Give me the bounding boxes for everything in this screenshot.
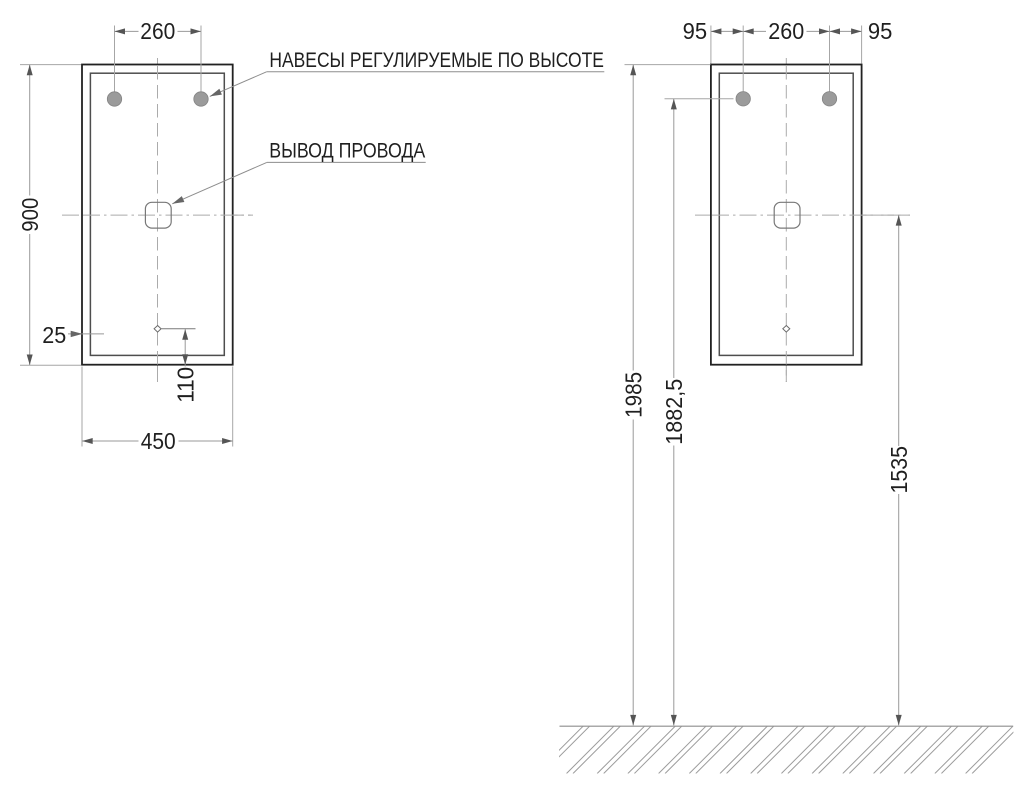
svg-text:260: 260 — [768, 18, 804, 44]
svg-text:1882,5: 1882,5 — [661, 379, 687, 445]
svg-text:1985: 1985 — [621, 372, 647, 418]
svg-text:НАВЕСЫ РЕГУЛИРУЕМЫЕ ПО ВЫСОТЕ: НАВЕСЫ РЕГУЛИРУЕМЫЕ ПО ВЫСОТЕ — [269, 48, 604, 72]
svg-text:95: 95 — [868, 18, 893, 44]
svg-text:450: 450 — [141, 428, 176, 454]
svg-text:95: 95 — [683, 18, 708, 44]
svg-text:1535: 1535 — [886, 446, 912, 494]
svg-text:25: 25 — [42, 322, 66, 348]
svg-text:110: 110 — [173, 367, 199, 403]
svg-text:900: 900 — [17, 198, 43, 232]
svg-text:260: 260 — [140, 18, 175, 44]
svg-text:ВЫВОД ПРОВОДА: ВЫВОД ПРОВОДА — [269, 139, 426, 163]
